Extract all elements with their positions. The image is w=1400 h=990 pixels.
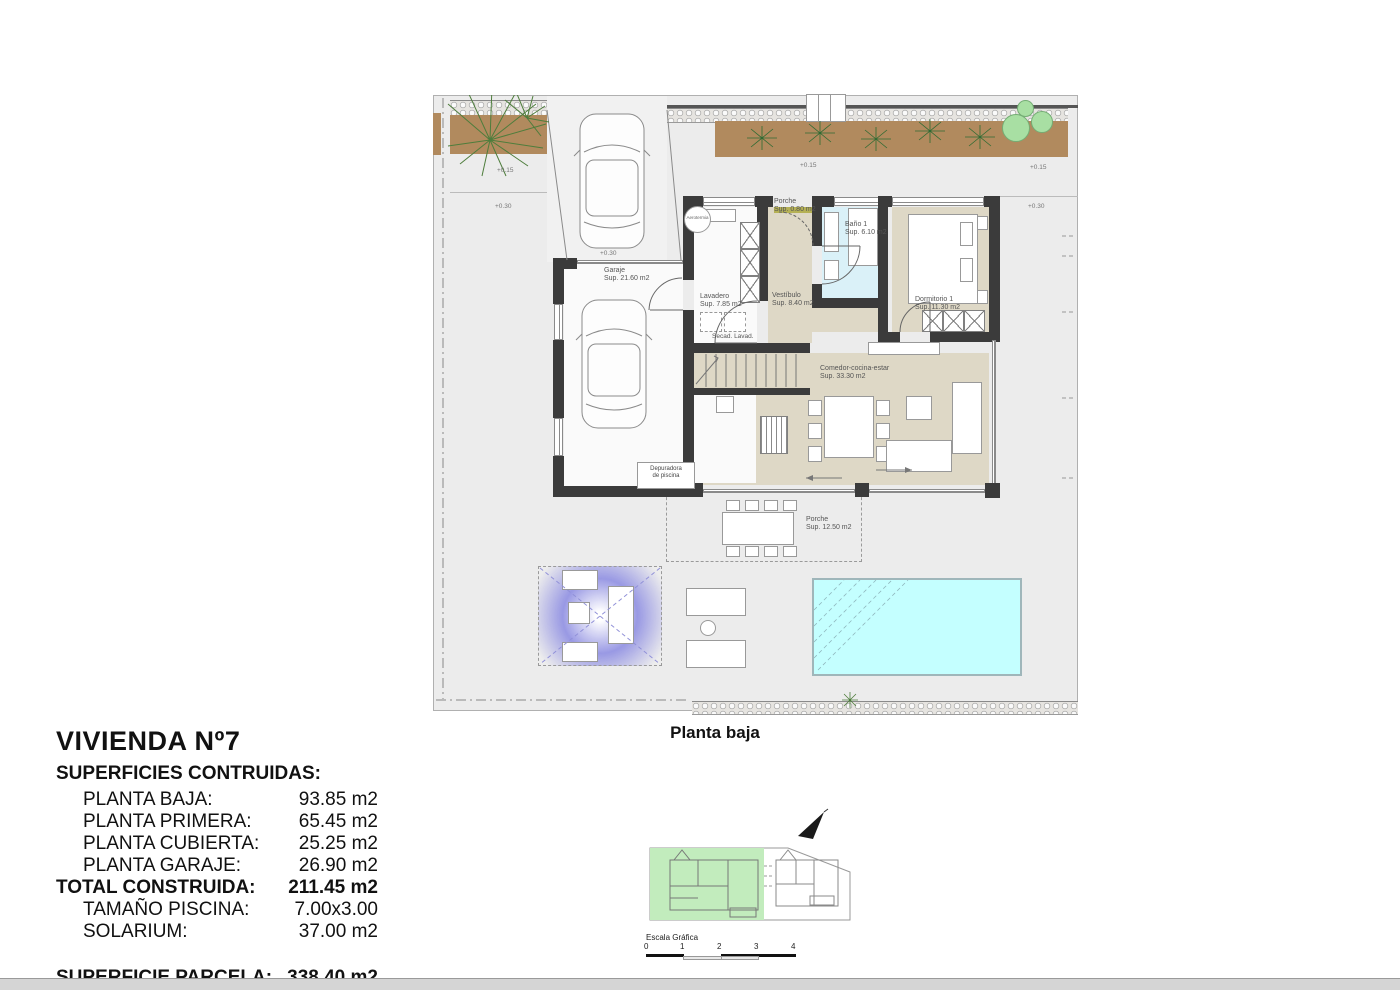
- summary-row: PLANTA GARAJE:26.90 m2: [56, 855, 378, 877]
- dwelling-title: VIVIENDA Nº7: [56, 726, 378, 757]
- level-marker: +0.15: [1030, 164, 1046, 171]
- chair: [876, 400, 890, 416]
- plan-title: Planta baja: [565, 723, 865, 743]
- terrace-chair: [726, 500, 740, 511]
- wall: [683, 258, 694, 280]
- sliding-glass-door: [703, 489, 855, 493]
- kitchen-island: [760, 416, 788, 454]
- gate-line: [830, 94, 831, 122]
- terrace-table: [722, 512, 794, 545]
- level-marker: +0.15: [800, 162, 816, 169]
- window: [554, 418, 563, 456]
- sheet-footer-strip: [0, 978, 1400, 990]
- room-label-dormitorio: Dormitorio 1Sup. 11.30 m2: [915, 296, 960, 312]
- window: [554, 304, 563, 340]
- summary-row: PLANTA CUBIERTA:25.25 m2: [56, 833, 378, 855]
- chair: [808, 446, 822, 462]
- entry-gate: [806, 94, 846, 122]
- wardrobe: [943, 310, 964, 332]
- scale-tick: 4: [791, 942, 795, 951]
- wall: [878, 196, 888, 308]
- wall: [878, 298, 888, 342]
- wall: [694, 388, 810, 395]
- terrace-chair: [726, 546, 740, 557]
- cabinet: [740, 222, 760, 249]
- level-marker: +0.15: [497, 167, 513, 174]
- room-label-garaje: GarajeSup. 21.60 m2: [604, 267, 650, 283]
- room-label-porche-terraza: PorcheSup. 12.50 m2: [806, 516, 852, 532]
- washer: [724, 312, 746, 332]
- summary-row: PLANTA PRIMERA:65.45 m2: [56, 811, 378, 833]
- kitchen-counter: [868, 342, 940, 355]
- dining-table: [824, 396, 874, 458]
- chair: [876, 423, 890, 439]
- sun-lounger: [686, 640, 746, 668]
- north-arrow-icon: [798, 809, 828, 839]
- wall: [989, 196, 1000, 340]
- window: [834, 197, 880, 206]
- scale-tick: 1: [680, 942, 684, 951]
- chaise: [952, 382, 982, 454]
- wall: [888, 332, 900, 342]
- scale-tick: 0: [644, 942, 648, 951]
- wall: [812, 298, 888, 308]
- window: [703, 197, 755, 206]
- bush: [1031, 111, 1053, 133]
- bath-vanity: [824, 212, 839, 252]
- scale-label: Escala Gráfica: [646, 933, 806, 942]
- pillar: [855, 483, 869, 497]
- terrace-chair: [745, 500, 759, 511]
- scale-bar-segment: [646, 954, 684, 957]
- driveway: [547, 96, 667, 262]
- bush: [1017, 100, 1034, 117]
- pergola-armchair: [562, 642, 598, 662]
- level-marker: +0.30: [495, 203, 511, 210]
- scale-tick: 2: [717, 942, 721, 951]
- wardrobe: [922, 310, 943, 332]
- pillow: [960, 258, 973, 282]
- room-label-porche-entry: PorcheSup. 0.80 m2: [774, 198, 816, 214]
- coffee-table: [906, 396, 932, 420]
- planting-bed-left: [450, 115, 547, 154]
- scale-tick: 3: [754, 942, 758, 951]
- sliding-glass-door: [869, 489, 985, 493]
- paving-joint-right: [1000, 196, 1078, 197]
- toilet: [824, 260, 839, 280]
- dryer: [700, 312, 722, 332]
- nightstand: [977, 290, 988, 304]
- vestibulo-floor: [768, 207, 812, 343]
- level-marker: +0.30: [1028, 203, 1044, 210]
- planting-bed-sliver: [433, 113, 441, 155]
- chair: [808, 400, 822, 416]
- scale-bar-segment: [683, 956, 722, 960]
- terrace-chair: [764, 500, 778, 511]
- terrace-chair: [745, 546, 759, 557]
- gate-line: [818, 94, 819, 122]
- plan-sheet: PorcheSup. 0.80 m2 Baño 1Sup. 6.10 m2 La…: [0, 0, 1400, 990]
- pergola-table: [568, 602, 590, 624]
- pergola-armchair: [562, 570, 598, 590]
- terrace-chair: [783, 500, 797, 511]
- garage-door: [577, 260, 683, 264]
- room-label-lavadero: LavaderoSup. 7.85 m2: [700, 293, 742, 309]
- highlighted-unit: [650, 848, 764, 920]
- cabinet: [740, 276, 760, 303]
- pergola-solarium: [538, 566, 662, 666]
- summary-subtitle: SUPERFICIES CONTRUIDAS:: [56, 763, 378, 785]
- garage-floor: [564, 262, 683, 486]
- cabinet: [740, 249, 760, 276]
- surface-summary: VIVIENDA Nº7 SUPERFICIES CONTRUIDAS: PLA…: [56, 726, 378, 989]
- pillow: [960, 222, 973, 246]
- room-label-comedor: Comedor-cocina-estarSup. 33.30 m2: [820, 365, 889, 381]
- window: [892, 197, 984, 206]
- chair: [808, 423, 822, 439]
- scale-bar-segment: [721, 956, 759, 960]
- bush: [1002, 114, 1030, 142]
- swimming-pool: [812, 578, 1022, 676]
- shower: [848, 208, 878, 266]
- appliance-labels: Secad. Lavad.: [712, 333, 754, 341]
- wardrobe: [964, 310, 985, 332]
- room-label-bano: Baño 1Sup. 6.10 m2: [845, 221, 887, 237]
- terrace-chair: [764, 546, 778, 557]
- pillar: [985, 483, 1000, 498]
- glazing: [992, 340, 996, 485]
- kitchen-sink: [716, 396, 734, 413]
- room-label-vestibulo: VestíbuloSup. 8.40 m2: [772, 292, 814, 308]
- level-marker: +0.30: [600, 250, 616, 257]
- key-plan: [638, 808, 868, 938]
- paving-joint-left: [450, 192, 547, 193]
- gravel-strip-bottom: [692, 701, 1078, 715]
- wall: [683, 343, 810, 353]
- wall: [553, 340, 564, 418]
- pergola-sofa: [608, 586, 634, 644]
- summary-row: TAMAÑO PISCINA:7.00x3.00: [56, 899, 378, 921]
- sun-lounger: [686, 588, 746, 616]
- terrace-chair: [783, 546, 797, 557]
- nightstand: [977, 216, 988, 230]
- summary-row: PLANTA BAJA:93.85 m2: [56, 789, 378, 811]
- corridor-floor: [812, 308, 888, 332]
- summary-row: SOLARIUM:37.00 m2: [56, 921, 378, 943]
- sofa: [886, 440, 952, 472]
- wall: [553, 258, 564, 304]
- summary-row-total: TOTAL CONSTRUIDA:211.45 m2: [56, 877, 378, 899]
- graphic-scale: Escala Gráfica 0 1 2 3 4: [646, 933, 806, 965]
- side-table-round: [700, 620, 716, 636]
- depuradora-label: Depuradorade piscina: [637, 466, 695, 480]
- aerotermia-label: Aerotermia: [684, 215, 711, 220]
